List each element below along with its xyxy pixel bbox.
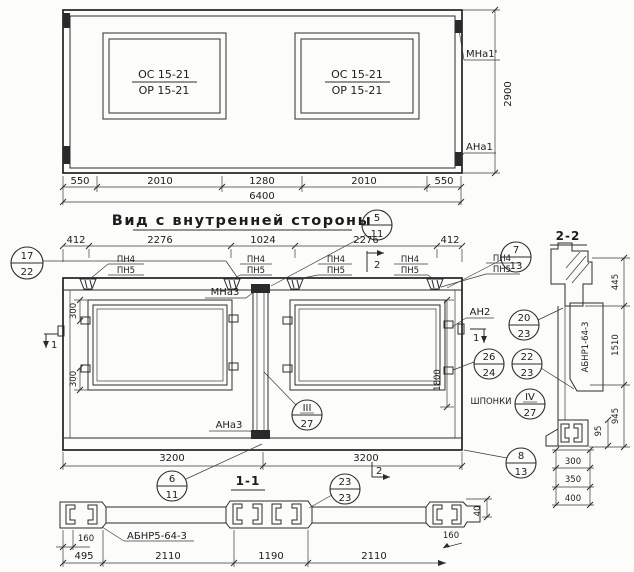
dim-1800-value: 1800 [433,369,443,391]
dim-2110-left: 2110 [155,551,180,562]
dim-2010-right: 2010 [351,176,376,187]
callout-bottom: 24 [483,368,496,379]
window-left-label-top: ОС 15-21 [138,68,190,81]
dim-300-top-value: 300 [69,303,79,319]
mark-ana1-label: АНа1 [466,142,493,153]
pn-group-1: ПН4 ПН5 [90,255,144,279]
mark-an2-label: АН2 [470,307,491,318]
section-1-1-view: АБНР5-64-3 160 40 160 495 2110 1190 [56,496,492,567]
callout-top: 17 [21,251,34,262]
dim-300-bottom-value: 300 [69,371,79,387]
marker-1-label: 1 [51,340,57,351]
dim-160-right: 160 [443,531,459,541]
pn-group-4: ПН4 ПН5 [394,255,433,279]
dim-445-value: 445 [611,274,621,290]
dim-412-left: 412 [66,235,85,246]
callout-bottom: 22 [21,267,34,278]
lift-loop-top-left [63,13,70,28]
dim-495: 495 [74,551,93,562]
mid-window-left [81,300,238,390]
marker-2-label: 2 [374,260,380,271]
section-marker-2-top: 2 [367,250,384,272]
dim-2276-left: 2276 [147,235,172,246]
window-right-label-bottom: ОР 15-21 [332,84,383,97]
window-left: ОС 15-21 ОР 15-21 [103,33,226,119]
mark-mna3-label: МНа3 [211,287,240,298]
pn-labels: ПН4 ПН5 ПН4 ПН5 ПН4 ПН5 ПН4 [90,254,520,287]
callout-bottom: 13 [515,467,528,478]
callout-23-23: 23 23 [330,474,360,504]
callout-top: 8 [518,451,524,462]
callout-7-13: 7 13 [501,242,531,272]
callout-bottom: 27 [301,419,314,430]
marker-2-label: 2 [376,466,382,477]
dim-2010-left: 2010 [147,176,172,187]
lift-loop-bottom-right [455,152,462,166]
pn4-label: ПН4 [327,255,345,265]
callout-bottom: 27 [524,408,537,419]
dim-3200-right: 3200 [353,453,378,464]
callout-bottom: 11 [166,490,179,501]
shponki-label: ШПОНКИ [471,397,512,407]
pn5-label: ПН5 [247,266,265,276]
top-view: ОС 15-21 ОР 15-21 ОС 15-21 ОР 15-21 МНа1… [60,7,514,205]
dim-stack-300: 300 [565,457,581,467]
callout-bottom: 23 [518,329,531,340]
callouts: 17 22 5 11 7 13 20 23 26 24 22 23 [11,210,545,504]
dim-40: 40 [466,496,492,520]
callout-bottom: 23 [521,368,534,379]
dim-2900-value: 2900 [503,81,514,106]
dim-2110-right: 2110 [361,551,386,562]
window-right: ОС 15-21 ОР 15-21 [295,33,419,119]
dim-stack-400: 400 [565,494,581,504]
top-view-dims: 550 2010 1280 2010 550 6400 [60,176,464,205]
dim-stack-350: 350 [565,475,581,485]
pn5-label: ПН5 [327,266,345,276]
callout-22-23: 22 23 [512,349,542,379]
callout-17-22: 17 22 [11,247,43,279]
dim-6400-total: 6400 [249,191,274,202]
callout-bottom: 11 [371,229,384,240]
section-1-1-dims: 495 2110 1190 2110 [60,530,446,567]
lift-loop-top-right [455,20,462,33]
dim-1024: 1024 [250,235,275,246]
section-marker-2-bottom: 2 [372,462,390,480]
mark-mna1-label: МНа1' [466,49,497,60]
callout-5-11: 5 11 [362,210,392,240]
callout-20-23: 20 23 [509,310,539,340]
marker-1-label: 1 [473,333,479,344]
section-marker-1-left: 1 [43,334,58,351]
product-label-abnr1: АБНР1-64-3 [581,322,591,373]
panel-drawing-canvas: ОС 15-21 ОР 15-21 ОС 15-21 ОР 15-21 МНа1… [0,0,634,572]
pn5-label: ПН5 [117,266,135,276]
callout-top: 22 [521,352,534,363]
pn-group-2: ПН4 ПН5 [233,255,272,279]
mid-window-right [283,300,453,390]
callout-bottom: 23 [339,493,352,504]
mid-view-dims-bottom: 3200 3200 [60,452,465,470]
dim-550-right: 550 [434,176,453,187]
callout-8-13: 8 13 [506,448,536,478]
pn5-label: ПН5 [401,266,419,276]
callout-iii-27: III 27 [292,400,322,430]
window-left-label-bottom: ОР 15-21 [139,84,190,97]
dim-945-value: 945 [611,408,621,424]
callout-bottom: 13 [510,261,523,272]
window-right-label-top: ОС 15-21 [331,68,383,81]
callout-top: 26 [483,352,496,363]
callout-top: IV [525,392,535,403]
dim-95-value: 95 [594,426,604,437]
callout-6-11: 6 11 [157,471,187,501]
pn4-label: ПН4 [401,255,419,265]
center-divider [251,284,270,439]
callout-26-24: 26 24 [474,349,504,379]
dim-300-bottom: 300 [69,365,88,393]
section-marker-1-right: 1 [470,329,487,344]
view-title: Вид с внутренней стороны [112,213,372,229]
callout-top: III [303,403,312,414]
section-label-1-1: 1-1 [236,474,261,488]
dim-3200-left: 3200 [159,453,184,464]
mid-view: 412 2276 1024 2276 412 ПН4 ПН5 [43,235,520,490]
dims-stack-ladder: 300 350 400 [552,447,594,508]
callout-top: 7 [513,245,519,256]
dim-1280: 1280 [249,176,274,187]
dim-1510-value: 1510 [611,334,621,356]
edge-anchor-right [458,324,464,334]
dim-1190: 1190 [258,551,283,562]
dim-412-right: 412 [440,235,459,246]
dim-300-top: 300 [69,297,88,324]
callout-top: 20 [518,313,531,324]
mark-ana3-label: АНа3 [216,420,243,431]
dim-40-value: 40 [473,506,483,517]
callout-top: 5 [374,213,380,224]
product-label-abnr5: АБНР5-64-3 [127,531,187,542]
lift-loop-bottom-left [63,146,70,164]
section-2-2-view: 2-2 АБНР1-64-3 445 1510 945 [546,229,630,508]
callout-top: 6 [169,474,175,485]
pn4-label: ПН4 [247,255,265,265]
pn4-label: ПН4 [117,255,135,265]
blueprint-page: ОС 15-21 ОР 15-21 ОС 15-21 ОР 15-21 МНа1… [0,0,634,572]
dim-550-left: 550 [70,176,89,187]
dim-160-left: 160 [78,534,94,544]
callout-iv-27: IV 27 [515,389,545,419]
callout-top: 23 [339,477,352,488]
section-label-2-2: 2-2 [556,229,581,243]
